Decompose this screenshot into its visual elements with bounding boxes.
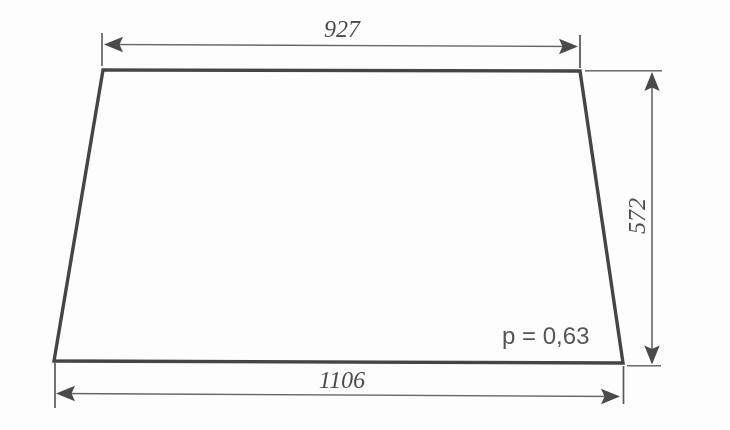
svg-text:927: 927 — [324, 17, 361, 43]
svg-text:572: 572 — [625, 198, 651, 234]
svg-text:1106: 1106 — [319, 368, 365, 394]
svg-text:p = 0,63: p = 0,63 — [502, 323, 589, 350]
